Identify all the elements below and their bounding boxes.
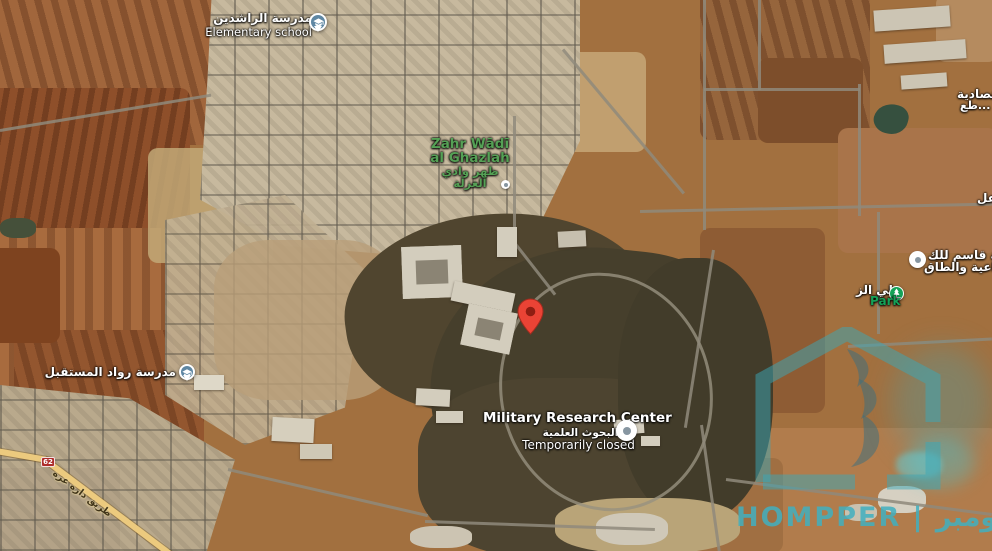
poi-label-economic-line2: طع... bbox=[960, 100, 990, 113]
school-icon[interactable] bbox=[309, 13, 327, 31]
poi-label-company-line2[interactable]: الصناعية والطاق bbox=[924, 261, 992, 275]
poi-dot-icon[interactable] bbox=[616, 420, 637, 441]
locality-label[interactable]: Zahr Wādī al Ghazlah ظهر وادي الغزلة bbox=[405, 137, 535, 189]
school-icon[interactable] bbox=[179, 364, 195, 380]
watermark: HOMPPER | هومبر bbox=[0, 0, 992, 551]
poi-label-elementary-school[interactable]: مدرسة الراشدين Elementary school bbox=[150, 12, 312, 39]
route-shield: 62 bbox=[41, 457, 55, 467]
poi-label-future-school[interactable]: مدرسة رواد المستقبل bbox=[40, 366, 176, 380]
poi-name: مدرسة الراشدين bbox=[150, 12, 312, 26]
watermark-logo bbox=[735, 327, 950, 492]
poi-dot-icon[interactable] bbox=[501, 180, 510, 189]
satellite-map[interactable]: HOMPPER | هومبر مدرسة الراشدين Elementar… bbox=[0, 0, 992, 551]
poi-label-park[interactable]: Park bbox=[870, 295, 900, 309]
map-pin-icon[interactable] bbox=[517, 298, 544, 335]
watermark-text: HOMPPER | هومبر bbox=[736, 502, 992, 533]
poi-type: Elementary school bbox=[150, 26, 312, 39]
edge-label-fragment: عل bbox=[977, 192, 992, 206]
locality-ar-2: الغزلة bbox=[405, 177, 535, 189]
